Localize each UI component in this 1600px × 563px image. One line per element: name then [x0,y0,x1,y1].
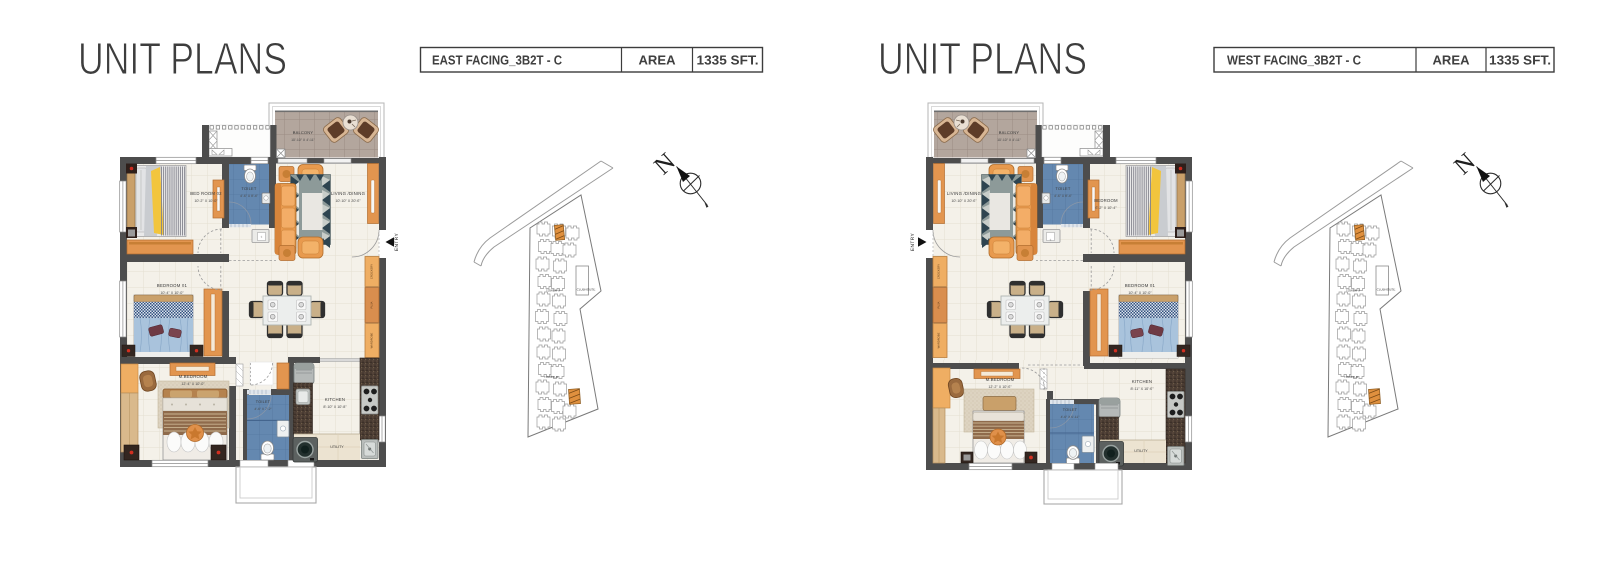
svg-text:ENTRY: ENTRY [394,233,400,252]
svg-text:UTILITY: UTILITY [330,445,344,449]
svg-text:TOILET: TOILET [256,400,271,404]
svg-text:PUJA: PUJA [370,301,373,308]
svg-text:UTILITY: UTILITY [1134,449,1148,453]
svg-text:4'-6" X 8'-4": 4'-6" X 8'-4" [240,194,258,198]
svg-text:8'-10" X 10'-8": 8'-10" X 10'-8" [323,405,347,409]
svg-text:10'-10" X 20'-6": 10'-10" X 20'-6" [951,199,977,203]
svg-text:LIVING /DINING: LIVING /DINING [331,191,366,196]
svg-text:WARDROBE: WARDROBE [938,332,941,348]
svg-text:LIVING /DINING: LIVING /DINING [947,191,982,196]
svg-text:10'-10" X 4'-11": 10'-10" X 4'-11" [291,138,316,142]
svg-text:BEDROOM 01: BEDROOM 01 [157,283,188,288]
svg-text:EAST FACING_3B2T - C: EAST FACING_3B2T - C [432,53,563,68]
svg-text:4'-6" X 6'-11": 4'-6" X 6'-11" [1061,415,1081,419]
svg-text:10'-2" X 10'-0": 10'-2" X 10'-0" [194,199,218,203]
svg-text:TOILET: TOILET [1063,408,1078,412]
svg-text:M.BEDROOM: M.BEDROOM [179,374,208,379]
svg-text:WEST FACING_3B2T - C: WEST FACING_3B2T - C [1227,53,1362,68]
svg-text:AREA: AREA [1433,53,1471,68]
svg-text:M.BEDROOM: M.BEDROOM [986,377,1015,382]
svg-text:10'-4" X 10'-0": 10'-4" X 10'-0" [1128,291,1152,295]
svg-text:BEDROOM: BEDROOM [1094,198,1118,203]
svg-text:UNIT PLANS: UNIT PLANS [78,33,287,84]
svg-text:ENTRY: ENTRY [910,233,916,252]
svg-text:WARDROBE: WARDROBE [370,332,373,348]
svg-text:KITCHEN: KITCHEN [325,397,345,402]
svg-text:CROCKERY: CROCKERY [370,264,373,279]
svg-text:4'-6" X 8'-4": 4'-6" X 8'-4" [1054,194,1072,198]
svg-text:1335 SFT.: 1335 SFT. [1489,53,1551,68]
svg-text:10'-4" X 10'-0": 10'-4" X 10'-0" [160,291,184,295]
svg-text:CROCKERY: CROCKERY [938,264,941,279]
svg-text:1335 SFT.: 1335 SFT. [697,53,759,68]
svg-text:10'-10" X 20'-6": 10'-10" X 20'-6" [335,199,361,203]
svg-text:12'-2" X 10'-6": 12'-2" X 10'-6" [988,385,1012,389]
svg-text:UNIT PLANS: UNIT PLANS [878,33,1087,84]
svg-text:TOILET: TOILET [241,186,256,191]
svg-text:AREA: AREA [639,53,677,68]
svg-text:4'-6" X 7'-2": 4'-6" X 7'-2" [254,407,272,411]
svg-text:BALCONY: BALCONY [999,130,1020,135]
svg-text:6'-2" X 10'-4": 6'-2" X 10'-4" [1095,206,1117,210]
svg-text:KITCHEN: KITCHEN [1132,379,1152,384]
svg-text:BED ROOM 02: BED ROOM 02 [190,191,222,196]
svg-text:12'-4" X 10'-0": 12'-4" X 10'-0" [181,382,205,386]
svg-text:TOILET: TOILET [1055,186,1070,191]
svg-text:PUJA: PUJA [938,301,941,308]
svg-text:8'-11" X 10'-6": 8'-11" X 10'-6" [1130,387,1154,391]
svg-text:BEDROOM 01: BEDROOM 01 [1125,283,1156,288]
svg-text:10'-10" X 4'-11": 10'-10" X 4'-11" [997,138,1022,142]
svg-text:BALCONY: BALCONY [293,130,314,135]
